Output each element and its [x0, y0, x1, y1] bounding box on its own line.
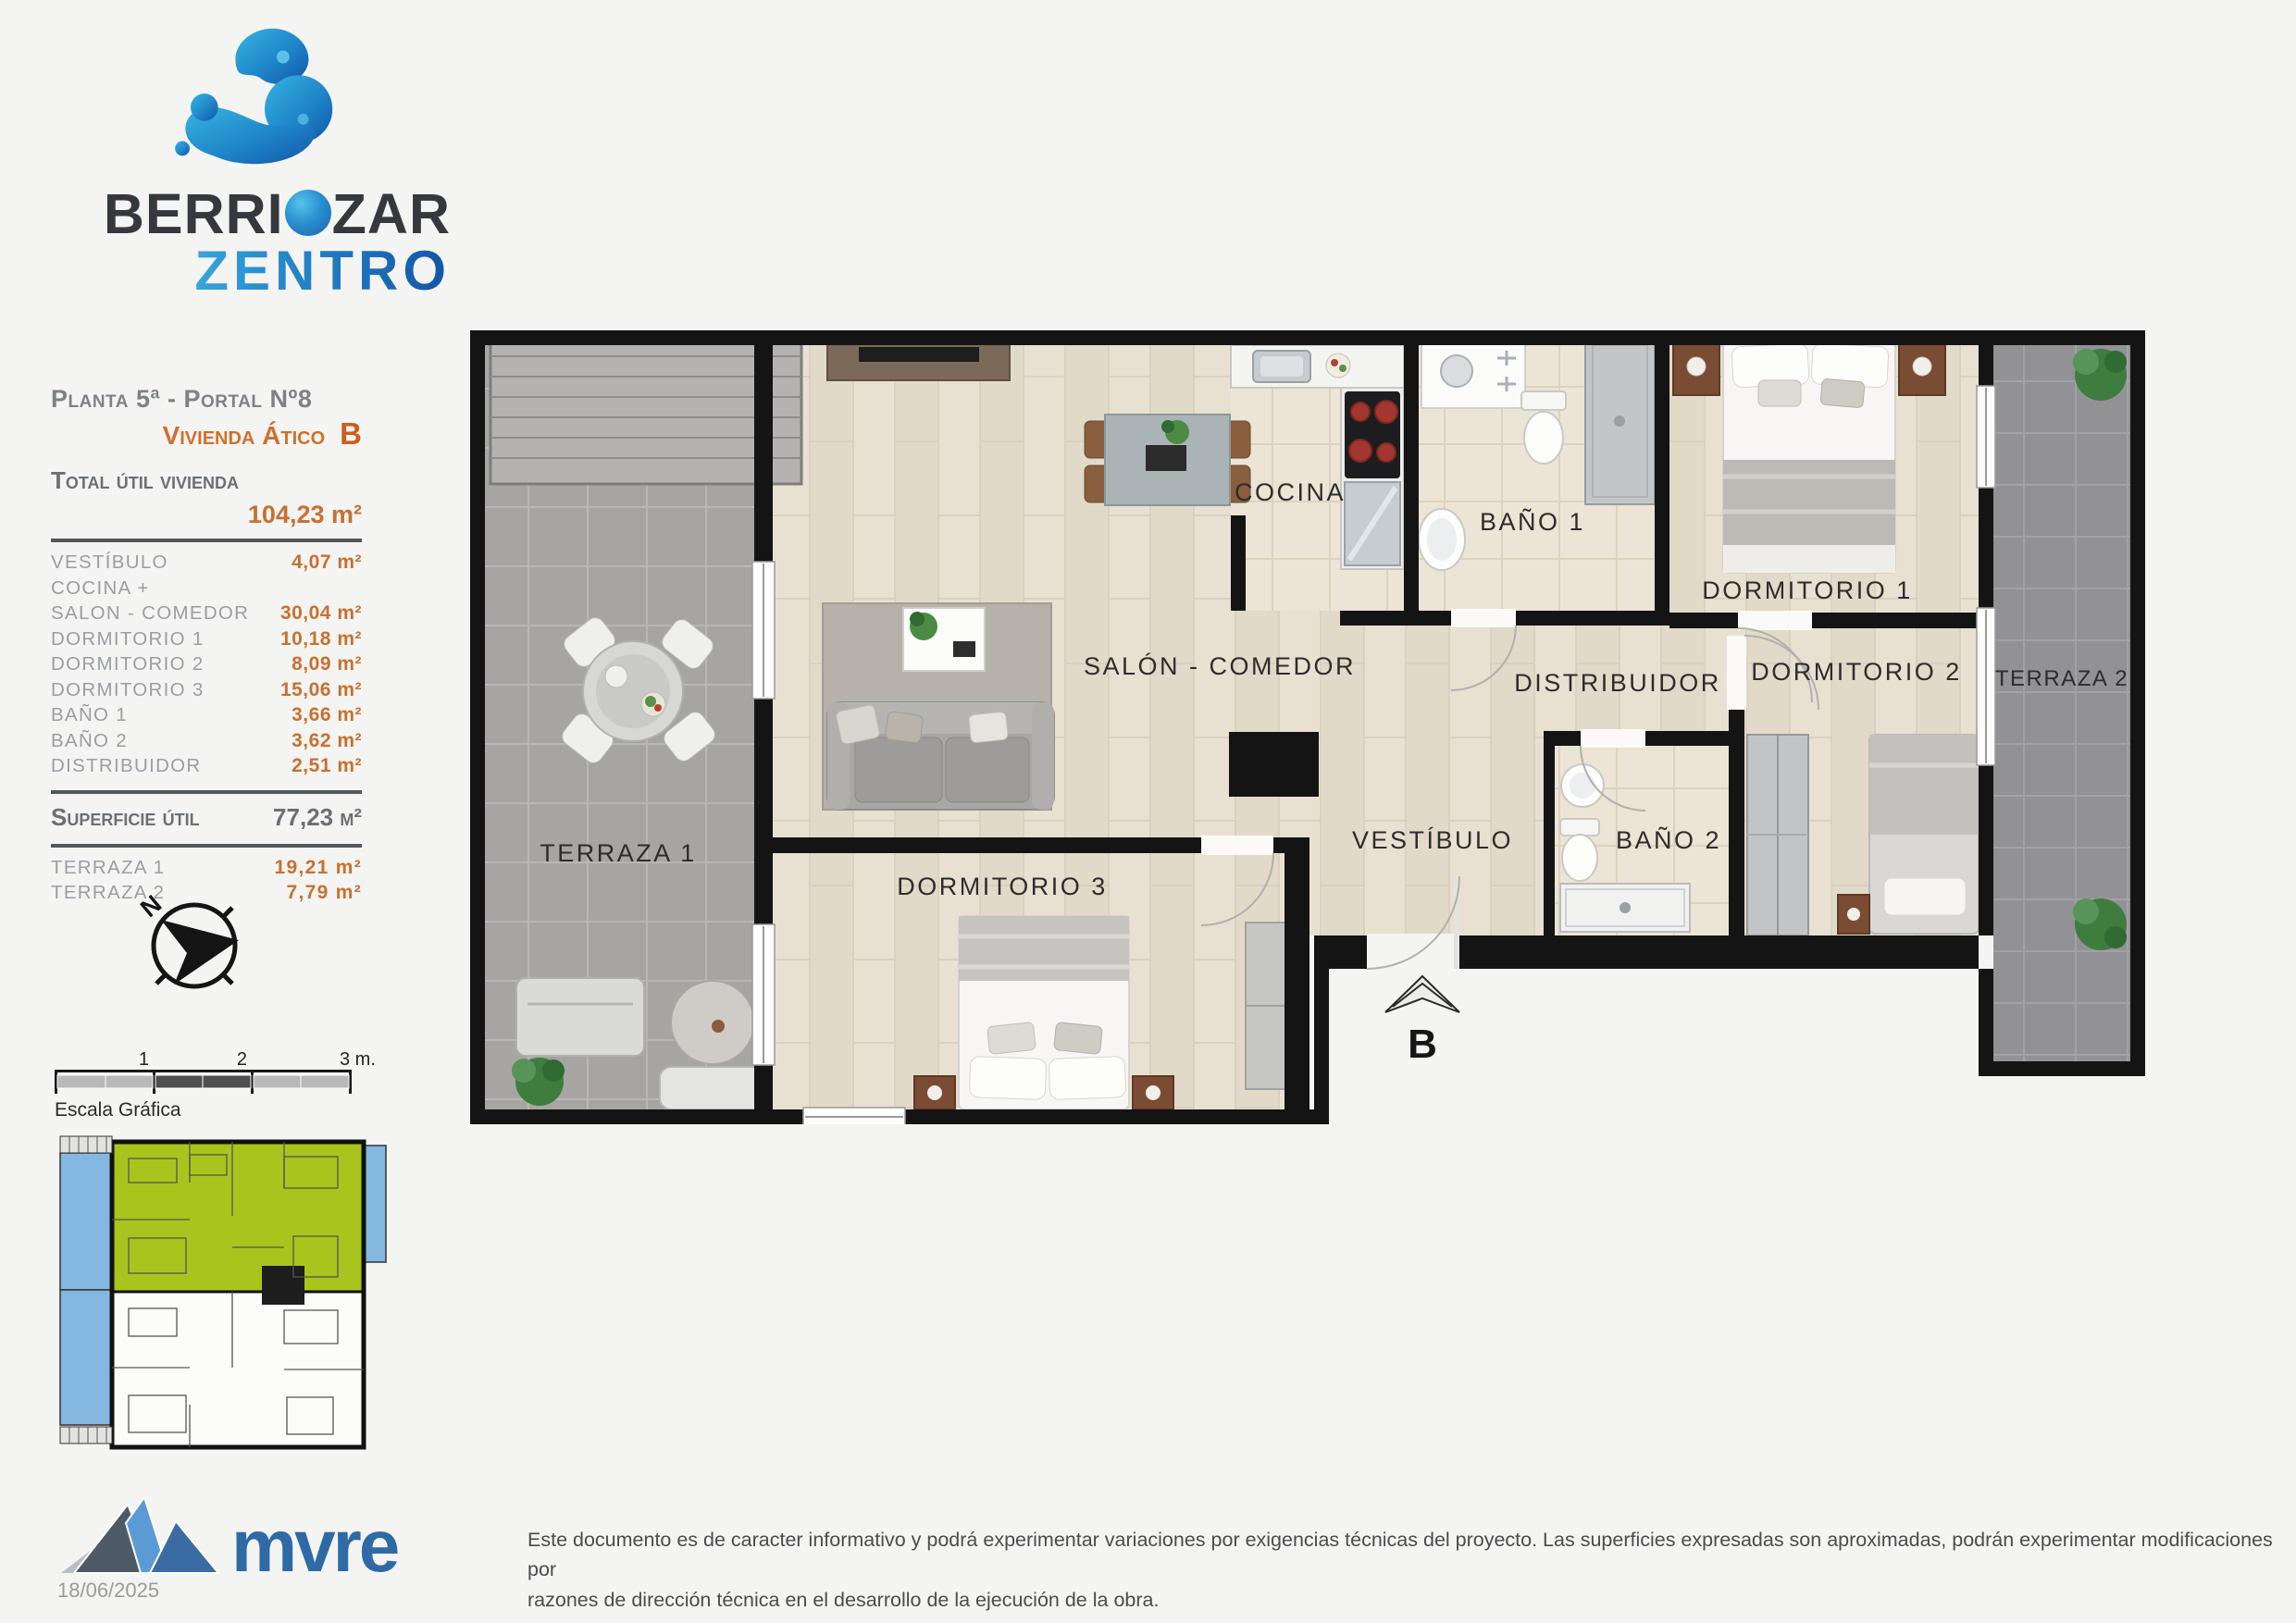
keyplan-highlighted-unit	[112, 1142, 364, 1292]
divider	[51, 790, 362, 794]
floor-portal-title: Planta 5ª - Portal Nº8	[51, 385, 362, 414]
disclaimer-line: Este documento es de caracter informativ…	[527, 1525, 2278, 1585]
plan-sheet: BERRIZAR ZENTRO Planta 5ª - Portal Nº8 V…	[0, 0, 2296, 1623]
area-row: SALON - COMEDOR30,04 m²	[51, 602, 362, 628]
washbasin	[1421, 338, 1525, 408]
brand-prefix: BERRI	[104, 182, 284, 245]
coffee-table	[671, 981, 754, 1064]
plate-food	[1339, 365, 1347, 372]
plate	[1326, 353, 1350, 378]
sofa	[827, 702, 1054, 810]
room-terraza2-floor	[1993, 345, 2130, 1061]
floor-plan: B TERRAZA 1 SALÓN - COMEDOR COCINA BAÑO …	[470, 330, 2145, 1124]
divider	[51, 844, 362, 848]
disclaimer-line: razones de dirección técnica en el desar…	[527, 1585, 2278, 1615]
room-label-bano2: BAÑO 2	[1616, 825, 1721, 854]
room-label-cocina: COCINA	[1235, 478, 1346, 506]
toilet	[1560, 819, 1599, 881]
brand-o-disc-icon	[285, 190, 331, 236]
room-label-vestibulo: VESTÍBULO	[1352, 826, 1513, 854]
brand-name-top: BERRIZAR	[81, 185, 456, 242]
shower	[1585, 338, 1655, 504]
total-value: 104,23 m²	[51, 501, 362, 529]
terraza-row: TERRAZA 119,21 m²	[51, 857, 362, 883]
area-row: DORMITORIO 28,09 m²	[51, 653, 362, 679]
room-label-terraza1: TERRAZA 1	[540, 839, 697, 867]
lounge-chair	[516, 978, 644, 1056]
bed-double	[959, 916, 1129, 1109]
kitchen-sink-basin	[1260, 356, 1303, 377]
total-label: Total útil vivienda	[51, 466, 362, 495]
shower	[1560, 884, 1690, 932]
unit-info-panel: Planta 5ª - Portal Nº8 Vivienda ÁticoB T…	[51, 385, 362, 908]
armchair	[660, 1067, 766, 1109]
north-compass-icon: N	[130, 881, 259, 1010]
area-row: COCINA +	[51, 577, 362, 603]
divider	[51, 539, 362, 542]
scale-tick-label: 2	[237, 1049, 247, 1070]
room-label-bano1: BAÑO 1	[1480, 507, 1585, 536]
scale-tick-label: 3 m.	[340, 1049, 376, 1070]
disclaimer-text: Este documento es de caracter informativ…	[527, 1525, 2278, 1615]
brand-splash-icon	[172, 20, 366, 185]
developer-logo: mvre	[54, 1492, 442, 1584]
keyplan-terrace-left	[60, 1153, 112, 1290]
bed-single	[1869, 735, 1979, 934]
area-row: DORMITORIO 110,18 m²	[51, 628, 362, 654]
unit-title-text: Vivienda Ático	[163, 421, 326, 450]
entrance-arrow-icon	[1385, 976, 1459, 1012]
keyplan-terrace-right	[364, 1146, 386, 1262]
plant-icon	[910, 612, 925, 626]
tablet	[953, 641, 975, 657]
area-row: DISTRIBUIDOR2,51 m²	[51, 755, 362, 781]
room-label-distribuidor: DISTRIBUIDOR	[1514, 669, 1721, 697]
area-row: VESTÍBULO4,07 m²	[51, 551, 362, 577]
wardrobe	[1747, 735, 1808, 935]
wardrobe	[1246, 923, 1286, 1089]
entrance-letter: B	[1408, 1022, 1437, 1067]
room-label-dormitorio2: DORMITORIO 2	[1751, 658, 1962, 686]
room-label-dormitorio3: DORMITORIO 3	[897, 873, 1108, 900]
brand-name-bottom: ZENTRO	[81, 242, 456, 299]
developer-logo-text: mvre	[231, 1505, 398, 1584]
tv	[859, 347, 979, 362]
cup	[712, 1020, 725, 1033]
dining-table	[1085, 415, 1250, 505]
toilet	[1521, 391, 1566, 464]
superficie-row: Superficie útil77,23 m²	[51, 803, 362, 835]
area-row: BAÑO 23,62 m²	[51, 730, 362, 756]
room-label-dormitorio1: DORMITORIO 1	[1702, 576, 1913, 604]
keyplan-terrace-left	[60, 1290, 112, 1425]
room-label-salon: SALÓN - COMEDOR	[1084, 651, 1356, 680]
bed-double	[1723, 338, 1895, 573]
brand-block: BERRIZAR ZENTRO	[81, 20, 456, 299]
brand-suffix: ZAR	[332, 182, 451, 245]
keyplan-stair-core	[262, 1266, 304, 1305]
plate-food	[1331, 359, 1338, 366]
unit-letter: B	[340, 416, 362, 451]
scale-caption: Escala Gráfica	[55, 1099, 181, 1121]
graphic-scale: 1 2 3 m. Escala Gráfica	[51, 1051, 458, 1127]
key-plan-thumbnail	[51, 1127, 389, 1483]
area-row: BAÑO 13,66 m²	[51, 704, 362, 730]
unit-title: Vivienda ÁticoB	[51, 416, 362, 452]
scale-tick-label: 1	[139, 1049, 149, 1070]
area-row: DORMITORIO 315,06 m²	[51, 679, 362, 705]
document-date: 18/06/2025	[57, 1579, 159, 1603]
room-label-terraza2: TERRAZA 2	[1995, 666, 2128, 691]
